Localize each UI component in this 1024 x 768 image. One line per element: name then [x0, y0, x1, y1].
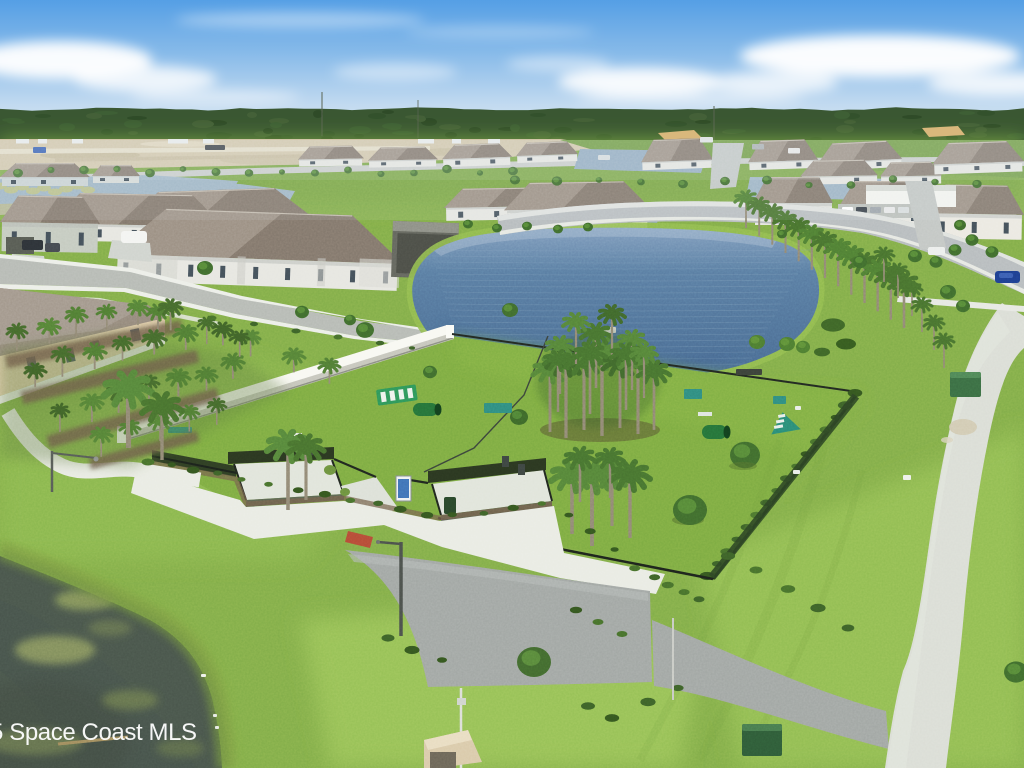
svg-text:5 Space Coast MLS: 5 Space Coast MLS — [0, 719, 197, 746]
